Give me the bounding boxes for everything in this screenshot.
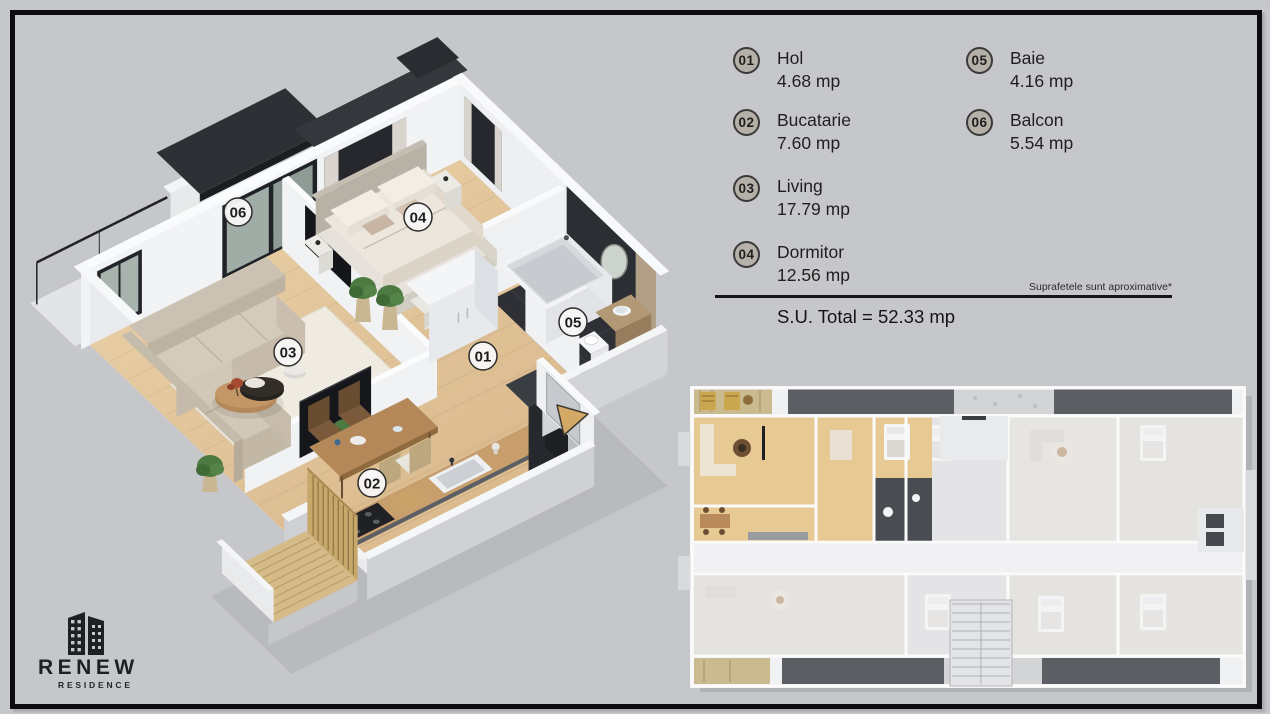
- legend-badge-04: 04: [733, 241, 760, 268]
- total-area-text: S.U. Total = 52.33 mp: [777, 306, 955, 328]
- room-area: 7.60 mp: [777, 132, 851, 155]
- room-name: Hol: [777, 47, 840, 70]
- room-name: Bucatarie: [777, 109, 851, 132]
- buildings-icon: [66, 608, 108, 658]
- legend-item-living: 03 Living 17.79 mp: [733, 175, 850, 221]
- apartment-3d-plan: [30, 37, 669, 674]
- svg-text:03: 03: [280, 345, 297, 362]
- legend-item-balcon: 06 Balcon 5.54 mp: [966, 109, 1073, 155]
- room-area: 4.68 mp: [777, 70, 840, 93]
- building-level-plan: [678, 386, 1256, 692]
- room-area: 17.79 mp: [777, 198, 850, 221]
- svg-text:01: 01: [475, 349, 492, 366]
- logo-name: RENEW: [38, 656, 139, 680]
- legend-badge-03: 03: [733, 175, 760, 202]
- legend-badge-05: 05: [966, 47, 993, 74]
- disclaimer-text: Suprafetele sunt aproximative*: [715, 281, 1172, 293]
- svg-text:06: 06: [230, 205, 247, 222]
- room-area: 5.54 mp: [1010, 132, 1073, 155]
- room-badge-02: 02: [358, 469, 386, 497]
- room-badge-05: 05: [559, 308, 587, 336]
- room-area: 4.16 mp: [1010, 70, 1073, 93]
- logo-subtitle: RESIDENCE: [58, 680, 133, 690]
- legend-item-bucatarie: 02 Bucatarie 7.60 mp: [733, 109, 851, 155]
- legend-badge-01: 01: [733, 47, 760, 74]
- legend-badge-02: 02: [733, 109, 760, 136]
- brand-logo: RENEW RESIDENCE: [34, 604, 234, 700]
- room-badge-06: 06: [224, 198, 252, 226]
- legend-item-baie: 05 Baie 4.16 mp: [966, 47, 1073, 93]
- room-name: Balcon: [1010, 109, 1073, 132]
- room-name: Dormitor: [777, 241, 850, 264]
- room-badge-04: 04: [404, 203, 432, 231]
- legend-badge-06: 06: [966, 109, 993, 136]
- svg-text:04: 04: [410, 210, 427, 227]
- legend-divider: [715, 295, 1172, 298]
- svg-text:05: 05: [565, 315, 582, 332]
- svg-text:02: 02: [364, 476, 381, 493]
- room-badge-01: 01: [469, 342, 497, 370]
- room-name: Baie: [1010, 47, 1073, 70]
- legend-item-hol: 01 Hol 4.68 mp: [733, 47, 840, 93]
- poster-canvas: 010203040506 01 Hol 4.68 mp 02 Bucatarie…: [0, 0, 1270, 714]
- room-name: Living: [777, 175, 850, 198]
- room-badge-03: 03: [274, 338, 302, 366]
